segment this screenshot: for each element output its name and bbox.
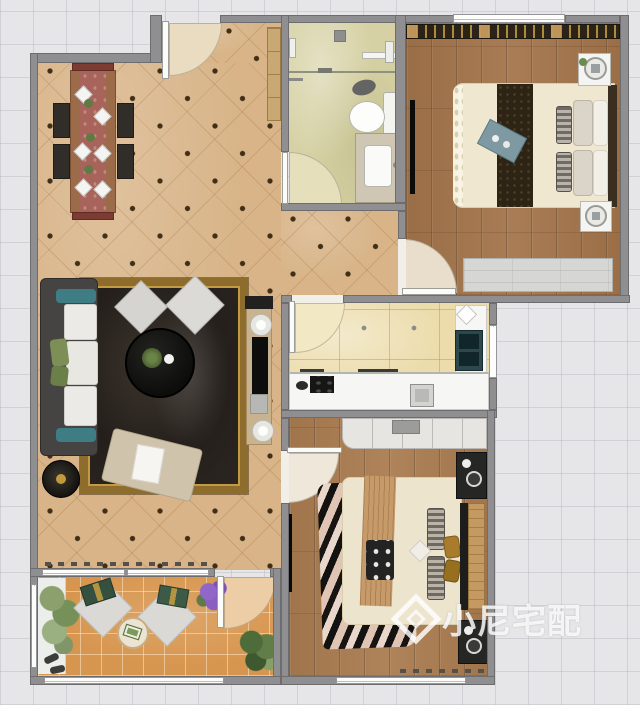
wall — [620, 15, 629, 303]
floor-drain — [334, 30, 346, 42]
door-leaf-bedroom2 — [287, 447, 342, 453]
door-leaf-balcony — [217, 576, 224, 628]
watermark-text: 小尼宅配 — [442, 594, 582, 643]
wall — [150, 15, 162, 63]
dining-bench-bottom — [72, 212, 114, 220]
wall — [281, 15, 289, 152]
dining-chair — [53, 103, 70, 138]
purple-plant — [194, 578, 230, 612]
wall-fixture — [289, 38, 296, 58]
floor-lamp-shade-center — [56, 474, 66, 484]
window — [453, 14, 565, 23]
bedroom-bench — [463, 258, 613, 292]
bed-pillow — [593, 100, 608, 146]
counter-handle — [358, 369, 398, 372]
counter-handle — [300, 369, 324, 372]
nightstand-lamp — [466, 471, 482, 487]
sofa-cushion — [64, 304, 97, 340]
ceiling-lamp — [252, 420, 274, 442]
tray-bottle — [492, 135, 499, 142]
window — [336, 677, 466, 684]
door-leaf-bathroom — [282, 152, 288, 204]
sofa-cushion — [64, 386, 97, 426]
window — [44, 677, 224, 684]
deco-pillow-chrome — [556, 106, 572, 144]
curtain-rail — [400, 669, 485, 673]
towel-bar — [289, 78, 303, 81]
sofa-pillow-green — [50, 365, 69, 387]
dining-chair — [117, 144, 134, 179]
sofa-pillow-teal — [56, 428, 96, 442]
window — [489, 325, 497, 378]
deco-pillow-chrome — [556, 152, 572, 192]
bed-pillow — [573, 150, 593, 196]
dining-bench-top — [72, 63, 114, 71]
wardrobe-strip — [406, 24, 620, 39]
table-flowers — [84, 99, 93, 108]
bed-pillow — [593, 150, 608, 196]
coffee-table-flowers — [142, 348, 162, 368]
wall — [489, 378, 497, 410]
window — [31, 584, 37, 668]
wall — [281, 410, 497, 418]
table-lamp-base — [592, 212, 600, 220]
sofa-pillow-teal — [56, 289, 96, 303]
media-box — [250, 394, 268, 414]
door-leaf-kitchen — [289, 301, 295, 353]
sofa-cushion — [66, 341, 98, 385]
shower-glass-handle — [318, 68, 332, 73]
wall — [30, 53, 162, 63]
corridor-floor — [281, 211, 398, 295]
tray-bottle — [503, 141, 510, 148]
kitchen-sink — [410, 384, 434, 407]
table-flowers — [84, 165, 93, 174]
coffee-table-ball — [164, 354, 174, 364]
bed2-pillow-striped — [427, 508, 445, 550]
door-threshold — [292, 295, 343, 303]
cooktop — [310, 376, 334, 393]
brand-logo-icon — [391, 593, 442, 644]
door-leaf-master — [402, 288, 456, 295]
toilet-bowl — [349, 101, 385, 133]
wall-tv — [410, 100, 415, 194]
window — [42, 569, 125, 576]
wall — [281, 503, 289, 685]
shoe-cabinet — [267, 27, 281, 121]
potted-plant — [36, 580, 82, 654]
refrigerator-door — [459, 334, 479, 349]
shower-glass-divider — [289, 71, 395, 73]
vanity-sink — [364, 145, 392, 187]
wall — [487, 410, 495, 685]
curtain-rail — [45, 562, 210, 566]
wall — [395, 15, 406, 203]
sofa-pillow-green — [49, 338, 69, 367]
plant-sprig — [579, 58, 587, 66]
wardrobe-item — [392, 420, 420, 434]
wall — [281, 303, 289, 410]
bed2-pillow-gold — [443, 535, 462, 559]
table-lamp-base — [591, 64, 600, 73]
wall — [273, 568, 281, 685]
kitchen-bowl — [296, 381, 308, 390]
headboard — [608, 85, 617, 207]
floorplan-canvas: 小尼宅配 — [0, 0, 640, 705]
watermark: 小尼宅配 — [398, 594, 582, 643]
refrigerator-door — [459, 352, 479, 366]
wall — [565, 15, 620, 23]
master-bed-ruffle — [453, 85, 463, 206]
wall — [489, 303, 497, 325]
wall — [343, 295, 630, 303]
dining-chair — [117, 103, 134, 138]
door-leaf-entry — [162, 21, 169, 79]
soundbar — [245, 296, 273, 309]
wall — [281, 203, 406, 211]
ceiling-lamp — [250, 314, 272, 336]
door-threshold — [281, 451, 289, 503]
door-threshold — [398, 239, 406, 295]
bed-pillow — [573, 100, 593, 146]
dining-chair — [53, 144, 70, 179]
window — [127, 569, 209, 576]
table-flowers — [86, 133, 95, 142]
wall — [398, 211, 406, 239]
wall — [220, 15, 455, 23]
nightstand-lamp — [462, 459, 471, 468]
shower-head — [385, 41, 394, 63]
bed2-tray — [366, 540, 394, 580]
